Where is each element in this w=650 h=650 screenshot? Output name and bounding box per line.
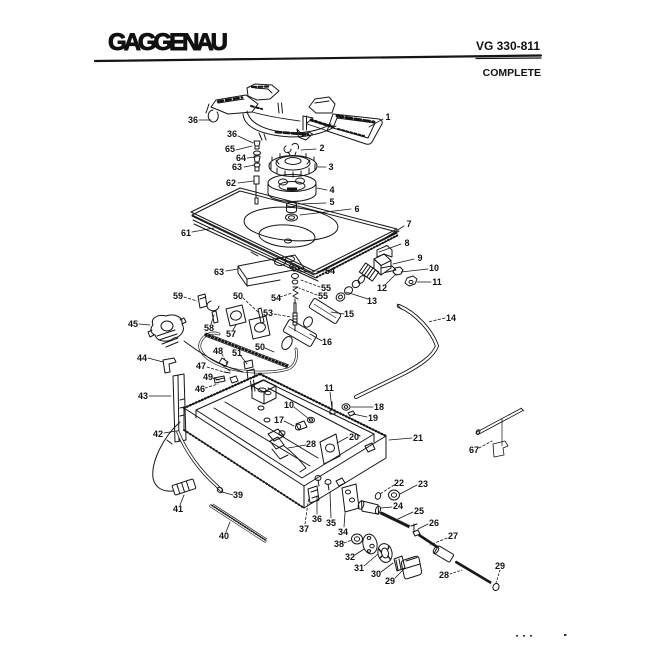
svg-text:28: 28 bbox=[306, 439, 316, 449]
svg-text:36: 36 bbox=[188, 115, 198, 125]
svg-text:44: 44 bbox=[137, 353, 147, 363]
svg-text:55: 55 bbox=[318, 291, 328, 301]
svg-text:1: 1 bbox=[385, 112, 390, 122]
svg-text:COMPLETE: COMPLETE bbox=[483, 67, 541, 79]
svg-text:11: 11 bbox=[324, 383, 334, 393]
svg-text:39: 39 bbox=[233, 490, 243, 500]
svg-text:18: 18 bbox=[374, 402, 384, 412]
svg-text:54: 54 bbox=[271, 293, 281, 303]
svg-text:49: 49 bbox=[203, 372, 213, 382]
svg-text:14: 14 bbox=[446, 313, 456, 323]
svg-text:12: 12 bbox=[377, 283, 387, 293]
svg-text:15: 15 bbox=[344, 309, 354, 319]
svg-text:34: 34 bbox=[338, 527, 348, 537]
svg-text:35: 35 bbox=[326, 518, 336, 528]
svg-text:45: 45 bbox=[128, 319, 138, 329]
svg-text:29: 29 bbox=[385, 576, 395, 586]
svg-text:13: 13 bbox=[367, 296, 377, 306]
svg-text:63: 63 bbox=[214, 267, 224, 277]
svg-text:20: 20 bbox=[349, 432, 359, 442]
svg-text:46: 46 bbox=[195, 384, 205, 394]
svg-text:50: 50 bbox=[255, 342, 265, 352]
svg-text:7: 7 bbox=[406, 219, 411, 229]
svg-text:17: 17 bbox=[274, 415, 284, 425]
svg-text:47: 47 bbox=[196, 361, 206, 371]
svg-text:3: 3 bbox=[328, 162, 333, 172]
svg-text:10: 10 bbox=[284, 400, 294, 410]
svg-text:67: 67 bbox=[469, 445, 479, 455]
svg-text:VG 330-811: VG 330-811 bbox=[476, 39, 540, 53]
svg-text:8: 8 bbox=[404, 238, 409, 248]
svg-text:59: 59 bbox=[173, 291, 183, 301]
svg-text:41: 41 bbox=[173, 504, 183, 514]
svg-text:26: 26 bbox=[429, 518, 439, 528]
svg-text:48: 48 bbox=[213, 346, 223, 356]
svg-text:51: 51 bbox=[232, 348, 242, 358]
svg-text:27: 27 bbox=[448, 531, 458, 541]
svg-text:2: 2 bbox=[319, 143, 324, 153]
svg-text:29: 29 bbox=[495, 561, 505, 571]
svg-text:63: 63 bbox=[232, 162, 242, 172]
svg-text:50: 50 bbox=[233, 291, 243, 301]
svg-text:62: 62 bbox=[226, 178, 236, 188]
svg-text:53: 53 bbox=[263, 308, 273, 318]
svg-text:GAGGENAU: GAGGENAU bbox=[108, 29, 227, 56]
svg-text:19: 19 bbox=[368, 413, 378, 423]
svg-text:5: 5 bbox=[329, 197, 334, 207]
svg-text:25: 25 bbox=[414, 506, 424, 516]
svg-text:21: 21 bbox=[413, 433, 423, 443]
svg-text:4: 4 bbox=[329, 185, 334, 195]
svg-text:22: 22 bbox=[394, 478, 404, 488]
svg-text:54: 54 bbox=[325, 266, 335, 276]
svg-text:31: 31 bbox=[354, 563, 364, 573]
svg-text:23: 23 bbox=[418, 479, 428, 489]
svg-text:24: 24 bbox=[393, 501, 403, 511]
svg-text:36: 36 bbox=[312, 514, 322, 524]
svg-text:9: 9 bbox=[417, 253, 422, 263]
svg-text:40: 40 bbox=[219, 531, 229, 541]
svg-text:37: 37 bbox=[299, 524, 309, 534]
svg-text:42: 42 bbox=[153, 429, 163, 439]
svg-text:16: 16 bbox=[322, 337, 332, 347]
svg-text:58: 58 bbox=[204, 323, 214, 333]
svg-text:57: 57 bbox=[226, 329, 236, 339]
svg-text:30: 30 bbox=[371, 569, 381, 579]
svg-text:32: 32 bbox=[345, 552, 355, 562]
svg-text:61: 61 bbox=[181, 228, 191, 238]
svg-text:11: 11 bbox=[432, 277, 442, 287]
svg-text:43: 43 bbox=[138, 391, 148, 401]
svg-text:38: 38 bbox=[334, 539, 344, 549]
svg-text:65: 65 bbox=[225, 144, 235, 154]
svg-text:36: 36 bbox=[227, 129, 237, 139]
svg-text:28: 28 bbox=[439, 570, 449, 580]
svg-text:10: 10 bbox=[429, 263, 439, 273]
svg-text:6: 6 bbox=[354, 204, 359, 214]
